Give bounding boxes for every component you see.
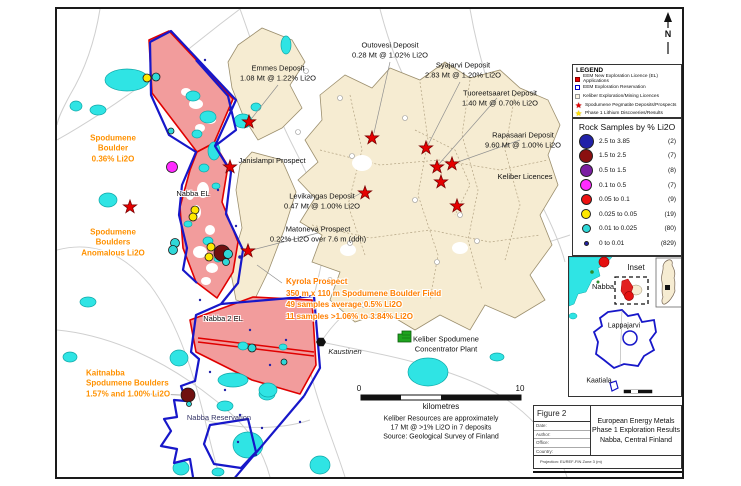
annotation-kaitnabba: Kaitnabba Spodumene Boulders 1.57% and 1… bbox=[86, 368, 170, 399]
sample-circle-icon bbox=[584, 241, 589, 246]
eem-reservation-swatch-icon bbox=[575, 85, 580, 90]
sample-circle-icon bbox=[582, 224, 591, 233]
label-concentrator-plant: Keliber SpodumeneConcentrator Plant bbox=[413, 334, 479, 354]
annotation-kyrola-prospect: Kyrola Prospect 350 m x 110 m Spodumene … bbox=[286, 276, 441, 322]
rock-class-row: 0.025 to 0.05 (19) bbox=[573, 207, 681, 222]
scale-end: 10 bbox=[516, 384, 525, 394]
rock-class-row: 2.5 to 3.85 (2) bbox=[573, 134, 681, 149]
red-star-icon: ★ bbox=[575, 103, 582, 108]
sample-circle-icon bbox=[581, 209, 591, 219]
label-tuoreetsaaret: Tuoreetsaaret Deposit1.40 Mt @ 0.70% Li2… bbox=[462, 88, 538, 108]
figure-title-line: Phase 1 Exploration Results bbox=[591, 427, 681, 434]
scale-bar bbox=[361, 395, 521, 400]
inset-label-kaatiala: Kaatiala bbox=[586, 376, 611, 385]
legend-item-keliber-licences: Keliber Exploration/Mining Licences bbox=[573, 92, 681, 101]
legend-item-label: EEM Exploration Reservation bbox=[583, 85, 646, 90]
yellow-star-icon: ★ bbox=[575, 111, 582, 116]
label-rapasaari: Rapasaari Deposit9.60 Mt @ 1.00% Li2O bbox=[485, 130, 561, 150]
inset-title: Inset bbox=[627, 263, 644, 273]
sample-circle-icon bbox=[580, 179, 592, 191]
label-levikangas: Levikangas Deposit0.47 Mt @ 1.00% Li2O bbox=[284, 191, 360, 211]
legend-item-pegmatite-deposits: ★ Spodumene Pegmatite Deposits/Prospects bbox=[573, 101, 681, 110]
label-emmes: Emmes Deposit1.08 Mt @ 1.22% Li2O bbox=[240, 63, 316, 83]
sample-circle-icon bbox=[580, 164, 593, 177]
rock-samples-panel: Rock Samples by % Li2O 2.5 to 3.85 (2) 1… bbox=[572, 118, 682, 256]
sample-circle-icon bbox=[581, 194, 592, 205]
north-label: N bbox=[665, 29, 672, 41]
figure-meta-office: Office: bbox=[534, 439, 590, 448]
rock-class-row: 1.5 to 2.5 (7) bbox=[573, 149, 681, 164]
legend-item-eem-reservation: EEM Exploration Reservation bbox=[573, 84, 681, 93]
map-figure: Outovesi Deposit0.28 Mt @ 1.02% Li2O Emm… bbox=[0, 0, 741, 486]
figure-meta-country: Country: bbox=[534, 448, 590, 456]
rock-class-row: 0.01 to 0.025 (80) bbox=[573, 222, 681, 237]
label-keliber-licences: Keliber Licences bbox=[497, 172, 552, 182]
sample-circle-icon bbox=[579, 134, 594, 149]
figure-title-panel: Figure 2 Date: Author: Office: Country: … bbox=[533, 405, 682, 469]
legend-item-label: Keliber Exploration/Mining Licences bbox=[583, 94, 659, 99]
label-outovesi: Outovesi Deposit0.28 Mt @ 1.02% Li2O bbox=[352, 40, 428, 60]
inset-label-nabba: Nabba bbox=[592, 282, 614, 292]
inset-marker-icon bbox=[599, 257, 609, 267]
rock-samples-title: Rock Samples by % Li2O bbox=[573, 119, 681, 134]
rock-class-row: 0 to 0.01 (829) bbox=[573, 236, 681, 251]
concentrator-plant-icon bbox=[398, 331, 411, 342]
annotation-spodumene-boulder: Spodumene Boulder 0.36% Li2O bbox=[90, 133, 136, 164]
finland-location-square bbox=[665, 285, 670, 290]
rock-class-row: 0.05 to 0.1 (9) bbox=[573, 192, 681, 207]
label-nabba-reservation: Nabba Reservation bbox=[187, 413, 251, 423]
legend-item-eem-el: EEM New Exploration Licence (EL) Applica… bbox=[573, 75, 681, 84]
label-nabba-el: Nabba EL bbox=[176, 189, 209, 199]
figure-number: Figure 2 bbox=[534, 406, 590, 422]
label-matoneva: Matoneva Prospect0.22% Li2O over 7.6 m (… bbox=[270, 224, 366, 244]
legend-item-label: Phase 1 Lithium Discoveries/Results bbox=[585, 111, 663, 116]
figure-title-line: European Energy Metals bbox=[591, 418, 681, 425]
legend-item-label: Spodumene Pegmatite Deposits/Prospects bbox=[585, 103, 676, 108]
annotation-spodumene-boulders-anomalous: Spodumene Boulders Anomalous Li2O bbox=[81, 227, 145, 258]
scale-unit: kilometres bbox=[423, 402, 459, 412]
label-nabba2-el: Nabba 2 EL bbox=[203, 314, 243, 324]
label-kaustinen: Kaustinen bbox=[328, 347, 361, 357]
source-note: Keliber Resources are approximately 17 M… bbox=[383, 414, 499, 441]
figure-meta-author: Author: bbox=[534, 431, 590, 440]
label-janislampi: Janislampi Prospect bbox=[238, 156, 305, 166]
legend-panel: LEGEND EEM New Exploration Licence (EL) … bbox=[572, 64, 682, 118]
rock-class-row: 0.5 to 1.5 (8) bbox=[573, 163, 681, 178]
inset-lappajarvi-outline bbox=[594, 310, 656, 368]
inset-label-lappajarvi: Lappajarvi bbox=[608, 321, 640, 330]
keliber-licence-swatch-icon bbox=[575, 94, 580, 99]
sample-circle-icon bbox=[579, 149, 593, 163]
figure-projection-note: Projection: EUREF-FIN Zone 3 (m) bbox=[534, 456, 681, 467]
legend-item-label: EEM New Exploration Licence (EL) Applica… bbox=[583, 74, 679, 84]
scale-start: 0 bbox=[357, 384, 361, 394]
figure-title-line: Nabba, Central Finland bbox=[591, 437, 681, 444]
rock-class-row: 0.1 to 0.5 (7) bbox=[573, 178, 681, 193]
label-syajarvi: Syajarvi Deposit2.83 Mt @ 1.20% Li2O bbox=[425, 60, 501, 80]
inset-marker-icon bbox=[625, 292, 634, 301]
legend-item-phase1-results: ★ Phase 1 Lithium Discoveries/Results bbox=[573, 109, 681, 118]
figure-panel-underline bbox=[533, 471, 682, 473]
eem-el-swatch-icon bbox=[575, 77, 580, 82]
figure-meta-date: Date: bbox=[534, 422, 590, 431]
